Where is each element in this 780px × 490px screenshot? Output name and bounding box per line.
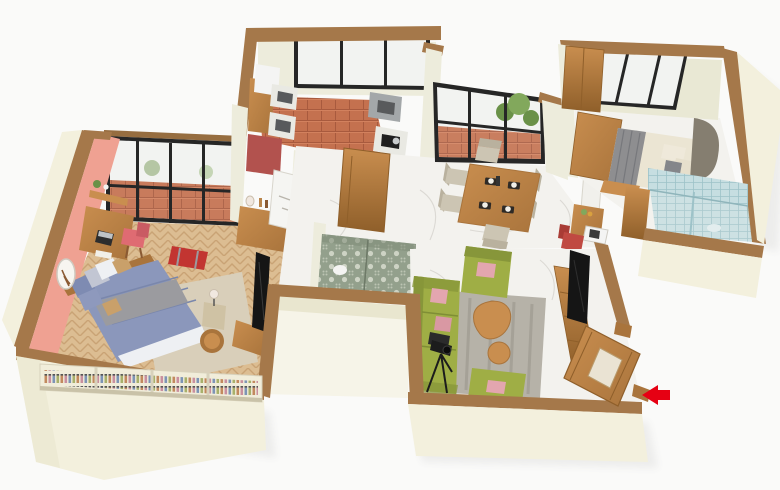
floor-plan-screenshot bbox=[0, 0, 780, 490]
window-mullion bbox=[384, 36, 387, 86]
toilet bbox=[333, 265, 347, 275]
cooking-pot bbox=[393, 138, 400, 145]
green-armchair-top bbox=[461, 246, 512, 298]
kitchen-top-wall-cap bbox=[246, 26, 441, 42]
wall-mirror bbox=[57, 259, 75, 289]
kitchen-window-glass bbox=[298, 36, 426, 86]
floor-plan-illustration bbox=[0, 0, 780, 490]
bathroom1-door bbox=[338, 148, 390, 232]
potted-plant bbox=[523, 110, 539, 126]
pink-cushion bbox=[486, 380, 506, 394]
bath-mat bbox=[707, 224, 721, 232]
balcony-plant bbox=[199, 165, 213, 179]
dining-table bbox=[458, 164, 540, 232]
window-mullion bbox=[340, 36, 343, 86]
kitchen-red-cabinet bbox=[246, 134, 282, 176]
food-tray bbox=[581, 209, 587, 215]
dining-chair bbox=[482, 224, 510, 250]
table-vase bbox=[496, 176, 500, 186]
pink-cushion bbox=[434, 316, 452, 332]
round-side-table bbox=[488, 342, 510, 364]
mug bbox=[103, 184, 108, 189]
glass-mullion bbox=[202, 144, 205, 224]
glass-mullion bbox=[136, 141, 139, 221]
plant-small bbox=[93, 180, 101, 188]
balcony-plant bbox=[144, 160, 160, 176]
food-tray bbox=[588, 212, 593, 217]
pink-cushion bbox=[430, 288, 448, 304]
tv-living bbox=[567, 250, 590, 324]
pink-cushion bbox=[476, 262, 496, 278]
round-stool-top bbox=[204, 333, 220, 349]
glass-mullion bbox=[169, 143, 172, 223]
